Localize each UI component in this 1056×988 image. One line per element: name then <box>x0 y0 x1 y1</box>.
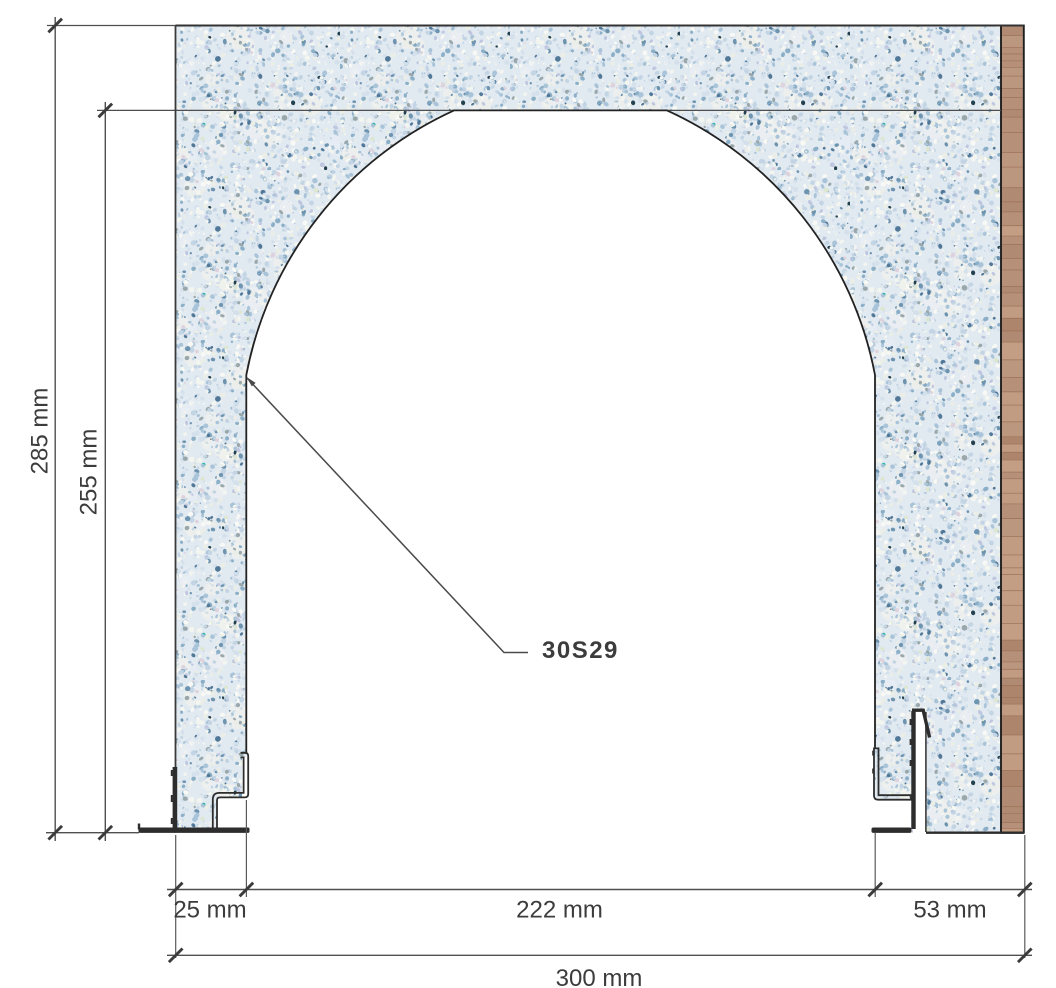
svg-text:285 mm: 285 mm <box>26 388 53 475</box>
svg-text:53 mm: 53 mm <box>913 897 986 924</box>
svg-text:25 mm: 25 mm <box>173 897 246 924</box>
svg-text:255 mm: 255 mm <box>76 429 103 516</box>
svg-text:222 mm: 222 mm <box>516 897 603 924</box>
svg-text:300 mm: 300 mm <box>556 965 643 988</box>
svg-text:30S29: 30S29 <box>542 637 619 664</box>
